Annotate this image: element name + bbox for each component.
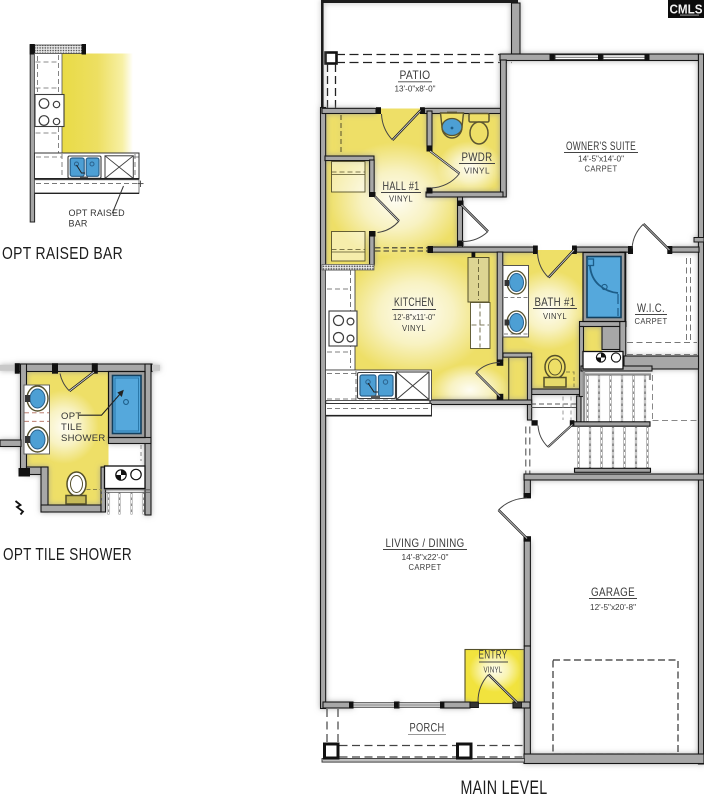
svg-text:ENTRY: ENTRY [479, 648, 508, 662]
svg-text:VINYL: VINYL [543, 312, 567, 321]
svg-text:TILE: TILE [61, 422, 82, 433]
svg-text:OPT: OPT [61, 411, 81, 422]
svg-text:MAIN LEVEL: MAIN LEVEL [461, 778, 548, 799]
svg-text:W.I.C.: W.I.C. [637, 301, 665, 315]
svg-text:VINYL: VINYL [402, 324, 426, 333]
svg-text:SHOWER: SHOWER [61, 433, 106, 444]
svg-text:CARPET: CARPET [635, 317, 668, 326]
svg-text:VINYL: VINYL [389, 195, 413, 204]
svg-text:12'-8"x11'-0": 12'-8"x11'-0" [393, 313, 435, 322]
svg-text:13'-0"x8'-0": 13'-0"x8'-0" [395, 85, 436, 94]
svg-text:BATH #1: BATH #1 [535, 295, 576, 309]
svg-text:LIVING / DINING: LIVING / DINING [386, 536, 465, 550]
svg-text:OPT RAISED: OPT RAISED [69, 208, 126, 218]
svg-text:CMLS: CMLS [670, 3, 703, 17]
svg-text:VINYL: VINYL [484, 666, 503, 675]
svg-text:14'-8"x22'-0": 14'-8"x22'-0" [402, 553, 449, 562]
svg-text:14'-5"x14'-0": 14'-5"x14'-0" [578, 155, 624, 164]
svg-text:HALL #1: HALL #1 [383, 179, 420, 193]
svg-text:12'-5"x20'-8": 12'-5"x20'-8" [590, 603, 636, 612]
svg-text:KITCHEN: KITCHEN [394, 295, 434, 309]
svg-text:CARPET: CARPET [585, 165, 618, 174]
svg-text:VINYL: VINYL [464, 167, 490, 176]
svg-text:OWNER'S SUITE: OWNER'S SUITE [566, 139, 636, 153]
svg-text:PATIO: PATIO [400, 68, 431, 82]
svg-text:OPT TILE SHOWER: OPT TILE SHOWER [3, 544, 132, 564]
svg-text:CARPET: CARPET [409, 563, 442, 572]
svg-text:OPT RAISED BAR: OPT RAISED BAR [2, 243, 123, 263]
svg-text:PWDR: PWDR [462, 150, 493, 164]
svg-text:PORCH: PORCH [410, 721, 445, 735]
svg-text:BAR: BAR [69, 219, 88, 229]
svg-text:GARAGE: GARAGE [591, 585, 635, 599]
